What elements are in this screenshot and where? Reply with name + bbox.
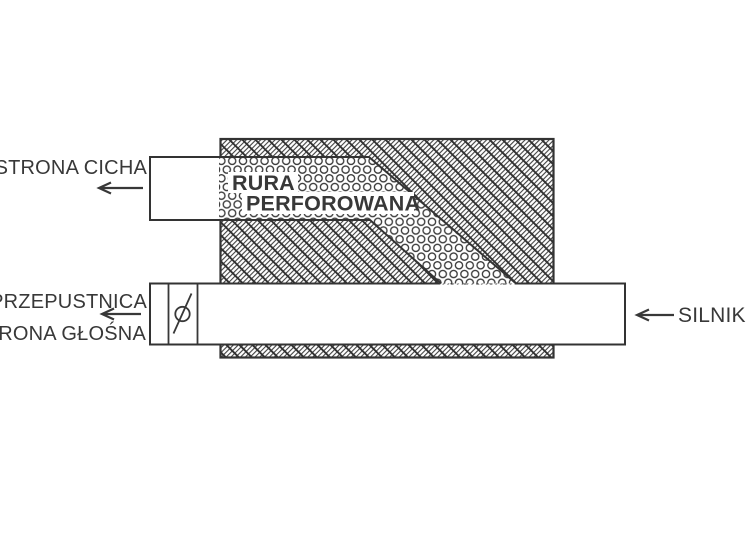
main-pipe bbox=[149, 283, 625, 346]
main-pipe-body bbox=[150, 285, 625, 345]
throttle-label: PRZEPUSTNICA bbox=[0, 291, 147, 313]
diagram-canvas: STRONA CICHA PRZEPUSTNICA STRONA GŁOŚNA … bbox=[0, 0, 750, 546]
quiet-side-label: STRONA CICHA bbox=[0, 157, 147, 179]
quiet-side-arrow-icon bbox=[99, 183, 143, 194]
engine-arrow-icon bbox=[637, 310, 674, 321]
engine-label: SILNIK bbox=[678, 304, 746, 327]
loud-side-label: STRONA GŁOŚNA bbox=[0, 321, 146, 345]
perforated-pipe-label-line2: PERFOROWANA bbox=[246, 192, 420, 216]
muffler-diagram: STRONA CICHA PRZEPUSTNICA STRONA GŁOŚNA … bbox=[0, 0, 750, 546]
quiet-side-pipe-body bbox=[149, 158, 219, 219]
